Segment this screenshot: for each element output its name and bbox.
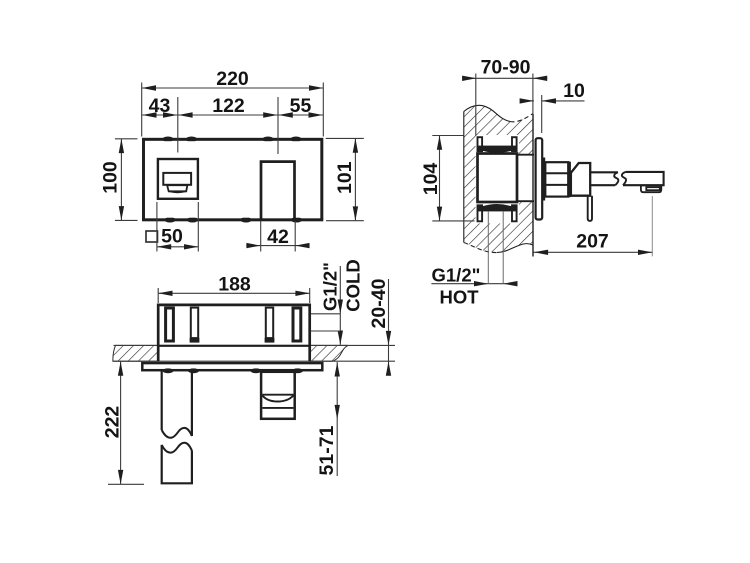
- svg-text:122: 122: [212, 95, 245, 117]
- svg-text:70-90: 70-90: [481, 57, 531, 79]
- svg-text:G1/2": G1/2": [432, 265, 481, 286]
- svg-text:222: 222: [102, 406, 124, 439]
- svg-text:HOT: HOT: [440, 287, 480, 308]
- svg-text:207: 207: [576, 231, 609, 253]
- svg-text:10: 10: [563, 80, 585, 102]
- svg-text:220: 220: [216, 68, 249, 90]
- svg-text:COLD: COLD: [343, 259, 364, 311]
- svg-text:42: 42: [267, 226, 289, 248]
- svg-text:188: 188: [218, 274, 251, 296]
- svg-text:51-71: 51-71: [316, 425, 338, 475]
- svg-text:20-40: 20-40: [368, 278, 390, 328]
- svg-text:101: 101: [334, 161, 356, 194]
- svg-text:100: 100: [100, 161, 122, 194]
- svg-text:50: 50: [161, 226, 183, 248]
- svg-text:104: 104: [420, 163, 442, 196]
- svg-text:43: 43: [149, 95, 171, 117]
- svg-text:55: 55: [290, 95, 312, 117]
- svg-text:G1/2": G1/2": [320, 262, 341, 311]
